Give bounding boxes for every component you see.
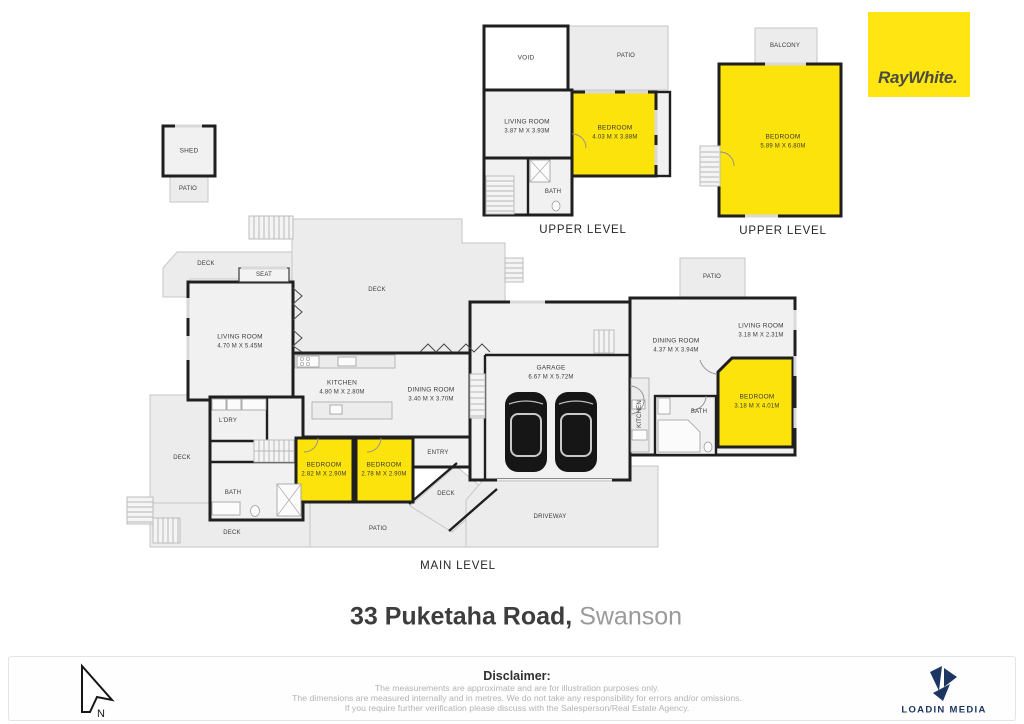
label-seat: SEAT — [256, 271, 272, 279]
label-garage: GARAGE6.67 M X 5.72M — [528, 365, 573, 382]
label-bath2: BATH — [691, 408, 707, 416]
title-address: 33 Puketaha Road, — [350, 603, 572, 631]
label-patio-bottom: PATIO — [369, 525, 387, 533]
label-deck-entry: DECK — [437, 490, 454, 498]
label-living2: LIVING ROOM3.18 M X 2.31M — [738, 323, 784, 340]
label-u2-balcony: BALCONY — [770, 42, 800, 50]
upper1-closet — [656, 92, 670, 176]
north-arrow-icon — [82, 666, 112, 712]
upper-level-2-plan — [700, 28, 841, 216]
kitchen-sink — [338, 357, 356, 366]
label-dining2: DINING ROOM4.37 M X 3.94M — [653, 338, 700, 355]
title-suburb: Swanson — [579, 603, 682, 631]
upper1-toilet — [552, 201, 560, 211]
car-right — [555, 392, 597, 472]
toilet2 — [704, 442, 712, 452]
label-shed-patio: PATIO — [179, 185, 197, 193]
label-deck-left: DECK — [173, 454, 190, 462]
label-entry: ENTRY — [427, 449, 448, 457]
label-driveway: DRIVEWAY — [534, 513, 567, 521]
car-left — [505, 392, 547, 472]
disclaimer-line-3: If you require further verification plea… — [345, 703, 690, 713]
label-patio-right: PATIO — [703, 273, 721, 281]
label-dining1: DINING ROOM3.40 M X 3.70M — [408, 387, 455, 404]
label-deck-top: DECK — [197, 260, 214, 268]
caption-main-level: MAIN LEVEL — [420, 560, 496, 572]
label-deck-big: DECK — [368, 286, 385, 294]
caption-upper-level-1: UPPER LEVEL — [539, 224, 626, 236]
washing-machine — [227, 399, 241, 410]
label-kitchen: KITCHEN4.80 M X 2.80M — [319, 380, 364, 397]
upper1-stairs — [486, 176, 514, 214]
label-living1: LIVING ROOM4.70 M X 5.45M — [217, 334, 263, 351]
main-deck-leftstrip — [150, 395, 210, 505]
label-deck-bottom: DECK — [223, 529, 240, 537]
loadin-media-icon — [930, 666, 957, 701]
disclaimer-heading: Disclaimer: — [483, 669, 550, 683]
label-kitchen-side: KITCHEN — [636, 400, 644, 428]
label-bedroom1: BEDROOM2.82 M X 2.90M — [301, 462, 346, 479]
north-label: N — [97, 708, 105, 720]
disclaimer-line-2: The dimensions are measured internally a… — [292, 693, 742, 703]
label-u2-bedroom: BEDROOM5.89 M X 6.80M — [760, 134, 805, 151]
label-u1-bedroom: BEDROOM4.03 M X 3.88M — [592, 125, 637, 142]
floorplan-page: RayWhite. — [0, 0, 1024, 724]
disclaimer-line-1: The measurements are approximate and are… — [375, 683, 659, 693]
label-u1-living: LIVING ROOM3.87 M X 3.93M — [504, 119, 550, 136]
label-bedroom3: BEDROOM3.18 M X 4.01M — [734, 394, 779, 411]
label-bath1: BATH — [225, 489, 241, 497]
toilet — [251, 506, 260, 517]
laundry-tub — [212, 399, 226, 410]
label-u1-void: VOID — [518, 55, 535, 64]
page-title: 33 Puketaha Road, Swanson — [350, 603, 682, 632]
kitchen-island — [312, 402, 392, 419]
label-ldry: L'DRY — [219, 417, 237, 425]
upper2-stairs — [700, 146, 720, 186]
vanity — [212, 502, 240, 515]
vanity2 — [658, 398, 670, 414]
label-u1-bath: BATH — [545, 188, 561, 196]
label-bedroom2: BEDROOM2.78 M X 2.90M — [361, 462, 406, 479]
main-garage-block — [470, 302, 630, 480]
label-u1-patio: PATIO — [617, 52, 635, 60]
loadin-media-label: LOADIN MEDIA — [901, 705, 986, 716]
label-shed: SHED — [180, 148, 199, 157]
caption-upper-level-2: UPPER LEVEL — [739, 225, 826, 237]
